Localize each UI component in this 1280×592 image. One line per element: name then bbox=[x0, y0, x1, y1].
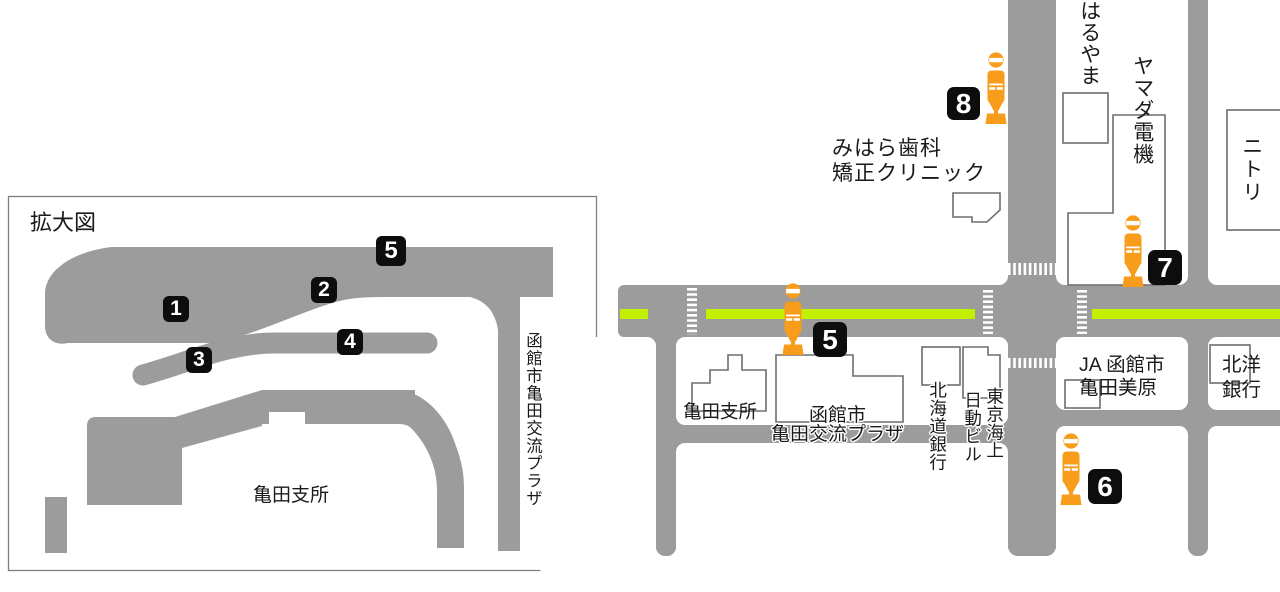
inset-roads bbox=[9, 197, 597, 571]
haruyama-label: はるやま bbox=[1076, 0, 1101, 86]
stop-badge-6: 6 bbox=[1088, 469, 1122, 504]
cross-road-south-cap bbox=[1008, 450, 1056, 556]
bus-stop-map: 拡大図 函館市亀田交流プラザ 亀田支所 1 2 3 4 5 はるやま ヤマダ電機… bbox=[0, 0, 1280, 592]
east-road-south-cap bbox=[1188, 450, 1208, 556]
tokio-marine-label-left: 日動ビル bbox=[962, 391, 983, 463]
block-clinic bbox=[600, 0, 1008, 285]
inset-stop-badge-3: 3 bbox=[186, 347, 212, 373]
ja-label-line2: 亀田美原 bbox=[1079, 377, 1157, 400]
inset-area-column bbox=[45, 497, 67, 553]
side-road-south-cap bbox=[656, 470, 676, 556]
block-southeast bbox=[1208, 426, 1280, 566]
tokio-marine-label-right: 東京海上 bbox=[984, 387, 1005, 459]
inset-stop-badge-4: 4 bbox=[337, 329, 363, 355]
inset-office-label: 亀田支所 bbox=[253, 485, 329, 507]
stop-badge-5: 5 bbox=[813, 322, 847, 357]
inset-stop-badge-1: 1 bbox=[163, 296, 189, 322]
inset-road-arm bbox=[498, 290, 520, 551]
stop-badge-8: 8 bbox=[947, 87, 980, 120]
street-map bbox=[540, 0, 1280, 577]
inset-stop-badge-5: 5 bbox=[376, 236, 406, 266]
nitori-label: ニトリ bbox=[1238, 135, 1263, 204]
ja-label-line1: JA 函館市 bbox=[1079, 354, 1165, 377]
kameda-office-label: 亀田支所 bbox=[683, 401, 757, 423]
inset-plaza-vertical-label: 函館市亀田交流プラザ bbox=[522, 332, 541, 507]
inset-road-fillet bbox=[470, 297, 498, 330]
block-southwest bbox=[540, 337, 656, 577]
map-graphics bbox=[0, 0, 1280, 592]
mihara-clinic-label-line2: 矯正クリニック bbox=[832, 162, 986, 187]
mihara-clinic-label-line1: みはら歯科 bbox=[832, 137, 942, 162]
stop-badge-7: 7 bbox=[1148, 250, 1182, 285]
hokkaido-bank-building bbox=[922, 347, 960, 385]
route-highlight-3 bbox=[1092, 309, 1280, 319]
inset-area-steps bbox=[87, 390, 262, 505]
inset-title: 拡大図 bbox=[30, 210, 96, 236]
hokuyo-bank-label-line1: 北洋 bbox=[1222, 354, 1261, 377]
route-highlight-2 bbox=[706, 309, 975, 319]
hokuyo-bank-label-line2: 銀行 bbox=[1222, 379, 1261, 402]
plaza-label-line2: 亀田交流プラザ bbox=[770, 424, 905, 446]
inset-stop-badge-2: 2 bbox=[311, 277, 337, 303]
inset-road-upper bbox=[45, 247, 553, 344]
haruyama-building bbox=[1063, 93, 1108, 143]
block-south-of-plaza bbox=[676, 443, 1008, 568]
yamada-denki-label: ヤマダ電機 bbox=[1129, 55, 1154, 165]
inset-area-lobe bbox=[390, 390, 464, 548]
hokkaido-bank-label: 北海道銀行 bbox=[927, 381, 948, 471]
route-highlight-1 bbox=[620, 309, 648, 319]
